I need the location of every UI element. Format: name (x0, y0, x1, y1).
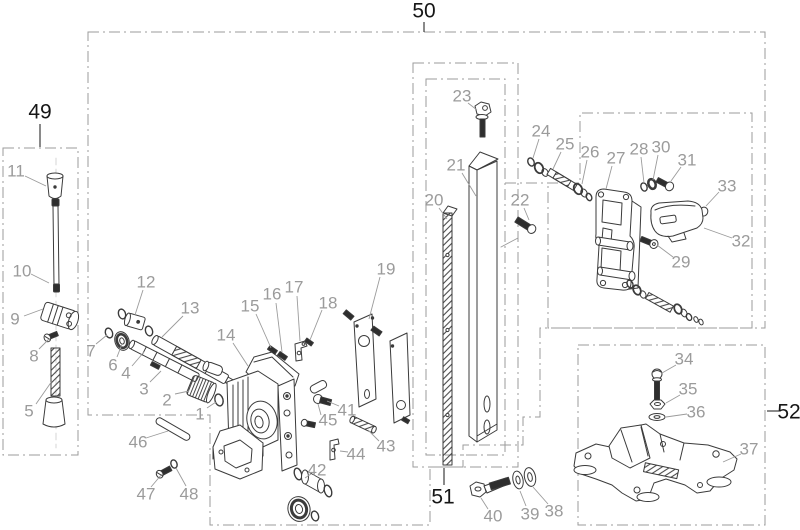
group-box-49-outline (3, 148, 78, 455)
screw-8-art (43, 330, 59, 343)
bearing-6-art (112, 330, 131, 352)
part-label-11: 11 (7, 162, 25, 181)
part-leader-48 (176, 468, 186, 486)
part-leader-13 (162, 316, 183, 337)
part-label-15: 15 (241, 297, 260, 316)
washer-39-art (511, 470, 525, 490)
exploded-parts-diagram: 1234567891011121314151617181920212223242… (0, 0, 800, 530)
part-label-46: 46 (129, 433, 148, 452)
bolt-34-art (652, 369, 662, 402)
part-leader-27 (606, 166, 612, 189)
part-label-29: 29 (672, 253, 691, 272)
part-label-27: 27 (607, 149, 626, 168)
part-leader-7 (96, 335, 107, 344)
part-label-5: 5 (24, 402, 33, 421)
base-37-art (574, 424, 737, 502)
housing-bushing-art (202, 360, 224, 376)
part-label-45: 45 (319, 411, 338, 430)
cap-5-art (43, 397, 65, 427)
part-label-19: 19 (377, 260, 396, 279)
part-leader-25 (553, 152, 561, 169)
part-label-3: 3 (139, 380, 148, 399)
screw-47-art (155, 465, 173, 479)
part-label-39: 39 (521, 505, 540, 524)
part-label-44: 44 (347, 445, 366, 464)
part-label-36: 36 (687, 403, 706, 422)
box-52-label: 52 (777, 401, 800, 424)
group-box-51-outline-outer (413, 63, 518, 467)
part-leader-32 (704, 228, 732, 238)
nut-35-art (650, 400, 665, 409)
part-leader-11 (25, 176, 46, 186)
lower-rod-art (626, 279, 704, 325)
part-label-21: 21 (447, 156, 466, 175)
rod-25-art (547, 168, 577, 190)
oring-7-art (104, 327, 114, 339)
part-leader-24 (533, 139, 539, 158)
part-label-14: 14 (217, 326, 236, 345)
box-50-label: 50 (412, 0, 435, 23)
part-label-35: 35 (679, 380, 698, 399)
part-label-33: 33 (718, 177, 737, 196)
bushing-12-art (123, 312, 145, 330)
part-label-37: 37 (740, 440, 759, 459)
part-label-38: 38 (545, 502, 564, 521)
part-leader-9 (24, 309, 43, 316)
part-label-34: 34 (675, 350, 694, 369)
part-label-20: 20 (425, 191, 444, 210)
screw-29-art (639, 235, 659, 250)
part-label-24: 24 (532, 122, 551, 141)
part-label-12: 12 (137, 273, 156, 292)
part-leader-36 (666, 414, 687, 417)
roller-45-art (309, 379, 328, 394)
oring-48-art (170, 459, 179, 469)
bolt-23-art (475, 102, 491, 137)
part-label-32: 32 (732, 232, 751, 251)
part-leader-22 (524, 208, 529, 220)
coupler-9-art (40, 302, 81, 331)
guide-assembly-art (527, 157, 710, 326)
part-label-40: 40 (484, 507, 503, 526)
group-box-52-outline (578, 345, 765, 525)
part-label-7: 7 (86, 342, 95, 361)
screw-42a-art (301, 419, 316, 429)
part-label-1: 1 (195, 405, 204, 424)
part-label-23: 23 (453, 87, 472, 106)
part-label-9: 9 (10, 310, 19, 329)
part-label-13: 13 (181, 299, 200, 318)
screw-22-art (501, 216, 537, 247)
spring-5-art (51, 348, 60, 396)
bolt-40-group-art (470, 467, 537, 497)
part-leader-4 (132, 352, 144, 366)
part-label-42: 42 (308, 461, 327, 480)
part-label-18: 18 (319, 294, 338, 313)
part-label-10: 10 (13, 262, 32, 281)
box-49-label: 49 (28, 101, 51, 124)
box-51-label: 51 (431, 486, 454, 509)
part-leader-10 (31, 274, 49, 283)
part-label-22: 22 (511, 191, 530, 210)
part-leader-18 (310, 310, 322, 340)
part-leader-15 (256, 314, 271, 348)
part-leader-28 (641, 157, 644, 183)
part-label-31: 31 (678, 151, 697, 170)
gearbox-housing-art (202, 352, 299, 479)
part-leader-30 (653, 155, 658, 180)
oring-12b-art (144, 325, 154, 337)
part-label-4: 4 (121, 364, 130, 383)
part-leader-8 (39, 339, 49, 349)
part-leader-14 (233, 343, 248, 366)
column-21-art (469, 152, 498, 442)
part-label-26: 26 (581, 143, 600, 162)
rod-10-art (53, 206, 60, 292)
pad-32-art (651, 201, 703, 242)
base-assembly-art (574, 369, 737, 502)
part-label-41: 41 (338, 401, 357, 420)
part-leader-46 (146, 431, 168, 438)
part-label-25: 25 (556, 135, 575, 154)
rod-collar-art (52, 199, 59, 206)
part-label-48: 48 (180, 485, 199, 504)
part-label-6: 6 (108, 356, 117, 375)
pin-46-art (155, 417, 191, 442)
rack-20-art (443, 206, 457, 465)
diagram-canvas: 1234567891011121314151617181920212223242… (0, 0, 800, 530)
screw-31-art (655, 176, 675, 192)
washer-38-art (523, 467, 538, 488)
part-label-16: 16 (263, 285, 282, 304)
bushing-30-art (647, 178, 657, 190)
part-leader-12 (135, 290, 143, 315)
part-leader-3 (150, 371, 161, 382)
part-leader-17 (297, 296, 300, 341)
part-label-30: 30 (652, 138, 671, 157)
washer-36-art (649, 414, 665, 421)
knob-11-art (47, 173, 63, 199)
bracket-27-art (596, 189, 642, 290)
part-leader-19 (369, 277, 380, 319)
part-label-28: 28 (630, 140, 649, 159)
oring-28-art (640, 182, 649, 192)
part-label-17: 17 (285, 278, 304, 297)
part-leader-26 (582, 160, 587, 184)
part-label-8: 8 (29, 347, 38, 366)
part-label-47: 47 (137, 485, 156, 504)
part-leader-16 (276, 303, 282, 352)
handle-assembly-art (40, 158, 81, 448)
oring-1-art (214, 393, 225, 407)
part-label-2: 2 (162, 391, 171, 410)
bolt-41-art (314, 395, 332, 406)
part-label-43: 43 (377, 437, 396, 456)
